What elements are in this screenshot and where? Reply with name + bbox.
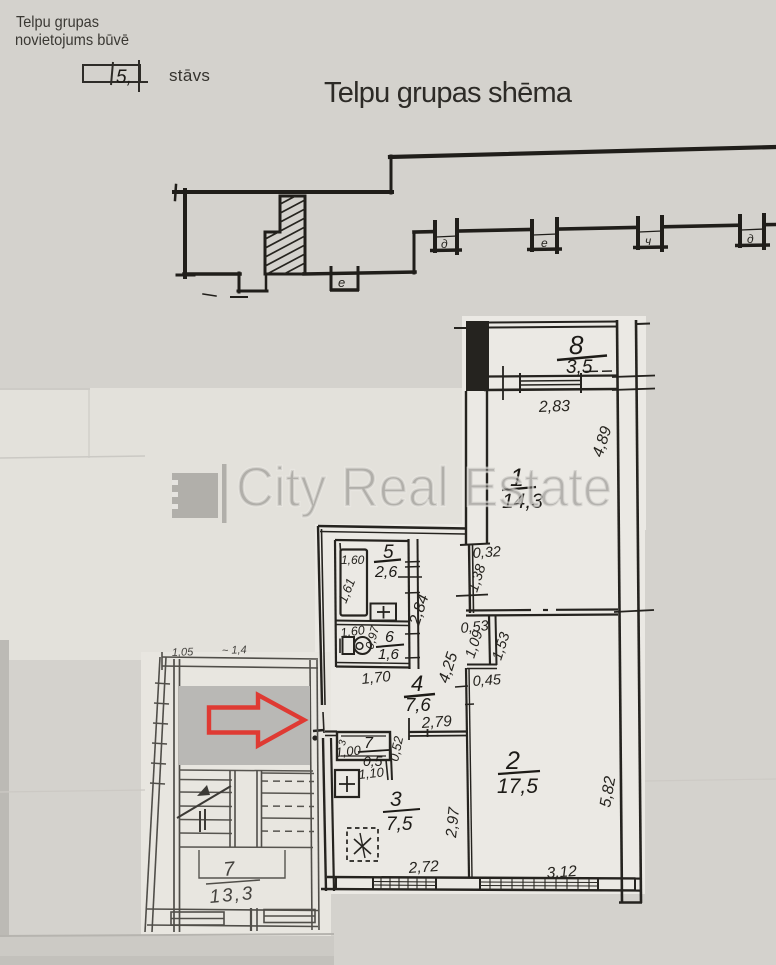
svg-text:1,60: 1,60 bbox=[341, 553, 365, 567]
svg-text:ч: ч bbox=[645, 234, 651, 248]
svg-text:1,6: 1,6 bbox=[378, 646, 400, 663]
svg-text:Telpu grupas: Telpu grupas bbox=[16, 14, 99, 31]
svg-text:2,79: 2,79 bbox=[420, 713, 453, 732]
svg-text:7,5: 7,5 bbox=[386, 814, 413, 835]
svg-text:1,70: 1,70 bbox=[361, 668, 392, 688]
svg-text:0,45: 0,45 bbox=[472, 672, 502, 690]
svg-text:5,: 5, bbox=[116, 67, 132, 88]
svg-text:stāvs: stāvs bbox=[169, 66, 210, 85]
svg-text:6: 6 bbox=[385, 629, 394, 646]
svg-text:д: д bbox=[747, 232, 754, 246]
svg-text:4: 4 bbox=[411, 671, 423, 696]
svg-text:е: е bbox=[541, 236, 548, 250]
svg-text:8: 8 bbox=[569, 330, 584, 360]
svg-text:7: 7 bbox=[364, 735, 374, 752]
svg-text:д: д bbox=[441, 237, 448, 251]
svg-text:City Real Estate: City Real Estate bbox=[236, 455, 612, 518]
svg-text:~ 1,4: ~ 1,4 bbox=[222, 644, 247, 657]
svg-text:13,3: 13,3 bbox=[209, 883, 256, 908]
svg-text:2,72: 2,72 bbox=[407, 858, 440, 877]
svg-text:1,60: 1,60 bbox=[340, 623, 366, 640]
svg-text:2,6: 2,6 bbox=[374, 564, 397, 581]
svg-text:2,83: 2,83 bbox=[538, 398, 571, 416]
svg-text:e: e bbox=[338, 275, 345, 290]
svg-text:1,10: 1,10 bbox=[358, 764, 385, 782]
svg-text:17,5: 17,5 bbox=[497, 775, 538, 798]
svg-text:3,5: 3,5 bbox=[566, 357, 593, 378]
svg-text:7,6: 7,6 bbox=[405, 694, 431, 715]
svg-text:3: 3 bbox=[390, 788, 402, 811]
svg-text:2,97: 2,97 bbox=[443, 805, 463, 839]
svg-text:0,32: 0,32 bbox=[472, 544, 501, 562]
svg-text:novietojums būvē: novietojums būvē bbox=[15, 32, 129, 49]
svg-text:Telpu grupas shēma: Telpu grupas shēma bbox=[324, 77, 573, 109]
svg-text:2: 2 bbox=[505, 747, 520, 775]
